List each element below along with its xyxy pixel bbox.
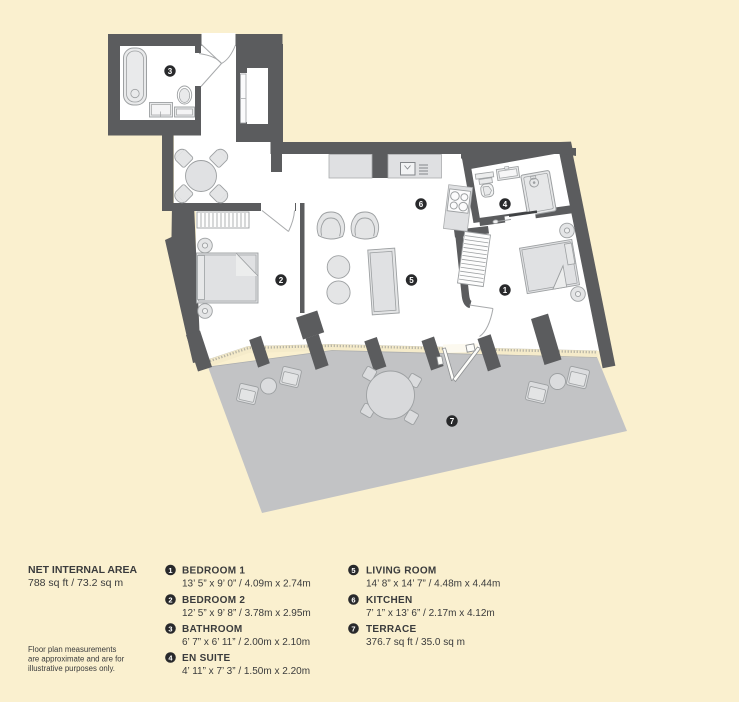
svg-text:13’ 5” x 9’ 0” / 4.09m x 2.74m: 13’ 5” x 9’ 0” / 4.09m x 2.74m xyxy=(182,579,311,590)
svg-text:2: 2 xyxy=(168,595,172,604)
svg-text:NET INTERNAL AREA: NET INTERNAL AREA xyxy=(28,564,138,576)
svg-text:1: 1 xyxy=(503,286,508,295)
svg-text:12’ 5” x 9’ 8” / 3.78m x 2.95m: 12’ 5” x 9’ 8” / 3.78m x 2.95m xyxy=(182,608,311,619)
svg-text:are approximate and are for: are approximate and are for xyxy=(28,655,125,664)
svg-text:BEDROOM 1: BEDROOM 1 xyxy=(182,566,245,577)
svg-text:2: 2 xyxy=(279,276,284,285)
svg-text:788 sq ft / 73.2 sq m: 788 sq ft / 73.2 sq m xyxy=(28,577,123,589)
svg-text:3: 3 xyxy=(168,624,172,633)
svg-text:376.7 sq ft / 35.0 sq m: 376.7 sq ft / 35.0 sq m xyxy=(366,637,465,648)
svg-text:3: 3 xyxy=(168,67,173,76)
svg-text:6’ 7” x 6’ 11” / 2.00m x 2.10m: 6’ 7” x 6’ 11” / 2.00m x 2.10m xyxy=(182,637,310,648)
svg-text:6: 6 xyxy=(419,200,424,209)
svg-text:7: 7 xyxy=(450,417,455,426)
svg-text:6: 6 xyxy=(351,595,355,604)
svg-text:4’ 11” x 7’ 3” / 1.50m x 2.20m: 4’ 11” x 7’ 3” / 1.50m x 2.20m xyxy=(182,666,310,677)
svg-text:5: 5 xyxy=(409,276,414,285)
svg-text:14’ 8” x 14’ 7” / 4.48m x 4.44: 14’ 8” x 14’ 7” / 4.48m x 4.44m xyxy=(366,579,500,590)
svg-text:LIVING ROOM: LIVING ROOM xyxy=(366,566,437,577)
svg-text:Floor plan measurements: Floor plan measurements xyxy=(28,645,117,654)
svg-text:BEDROOM 2: BEDROOM 2 xyxy=(182,595,245,606)
svg-text:EN SUITE: EN SUITE xyxy=(182,653,231,664)
svg-text:5: 5 xyxy=(351,566,355,575)
svg-text:7’ 1” x 13’ 6” / 2.17m x 4.12m: 7’ 1” x 13’ 6” / 2.17m x 4.12m xyxy=(366,608,495,619)
svg-text:illustrative purposes only.: illustrative purposes only. xyxy=(28,664,115,673)
svg-text:7: 7 xyxy=(351,624,355,633)
svg-text:KITCHEN: KITCHEN xyxy=(366,595,413,606)
svg-text:BATHROOM: BATHROOM xyxy=(182,624,243,635)
svg-text:4: 4 xyxy=(503,200,508,209)
svg-text:1: 1 xyxy=(168,566,172,575)
svg-text:TERRACE: TERRACE xyxy=(366,624,416,635)
